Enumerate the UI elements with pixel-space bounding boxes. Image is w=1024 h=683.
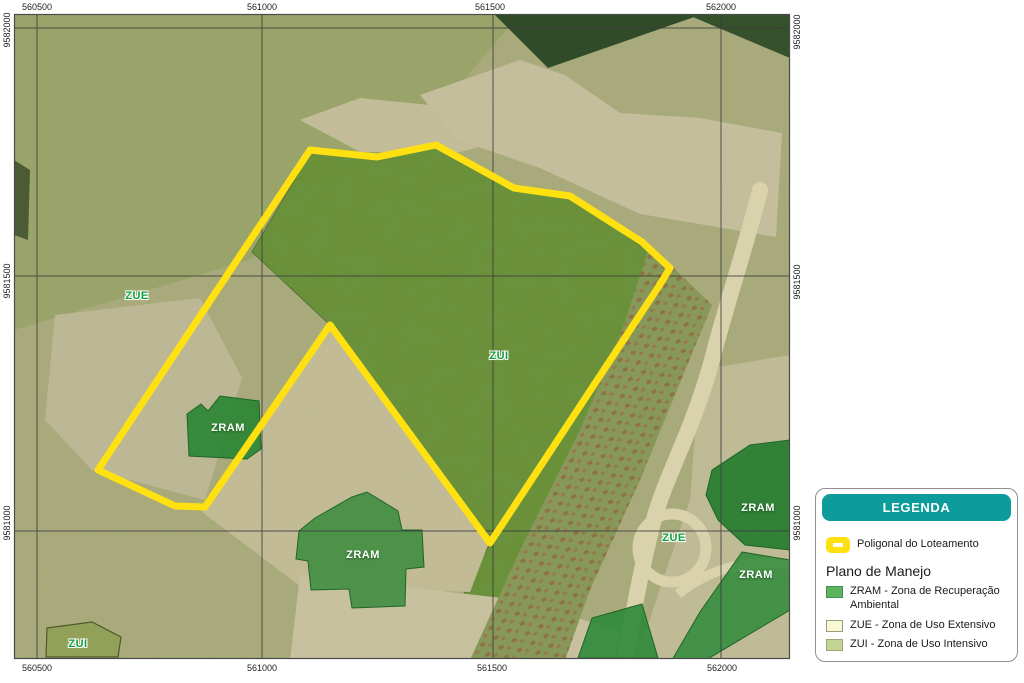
grid-label-left-9582000: 9582000 xyxy=(2,12,12,47)
grid-label-bottom-560500: 560500 xyxy=(22,663,52,673)
legend-item-zui: ZUI - Zona de Uso Intensivo xyxy=(826,638,1011,652)
aerial-grain xyxy=(14,14,790,659)
grid-label-bottom-561000: 561000 xyxy=(247,663,277,673)
legend-zone-items: ZRAM - Zona de Recuperação AmbientalZUE … xyxy=(826,585,1011,652)
legend-item-zram: ZRAM - Zona de Recuperação Ambiental xyxy=(826,585,1011,613)
zram-swatch-icon xyxy=(826,586,843,598)
grid-label-right-9581500: 9581500 xyxy=(792,264,802,299)
zone-label-zui: ZUI xyxy=(489,350,508,362)
polygon-outline-icon xyxy=(826,537,850,553)
legend-item-label: ZRAM - Zona de Recuperação Ambiental xyxy=(850,585,1011,613)
grid-label-bottom-561500: 561500 xyxy=(477,663,507,673)
map-document: 5605005610005615005620005605005610005615… xyxy=(0,0,1024,683)
zone-label-zui: ZUI xyxy=(68,638,87,650)
grid-label-left-9581000: 9581000 xyxy=(2,505,12,540)
legend-item-polygon: Poligonal do Loteamento xyxy=(826,537,1011,553)
grid-label-bottom-562000: 562000 xyxy=(707,663,737,673)
legend-title: LEGENDA xyxy=(822,494,1011,521)
legend-panel: LEGENDA Poligonal do Loteamento Plano de… xyxy=(815,488,1018,662)
grid-label-top-561500: 561500 xyxy=(475,2,505,12)
zui-swatch-icon xyxy=(826,639,843,651)
grid-label-top-560500: 560500 xyxy=(22,2,52,12)
grid-label-right-9582000: 9582000 xyxy=(792,14,802,49)
grid-label-top-562000: 562000 xyxy=(706,2,736,12)
legend-body: Poligonal do Loteamento Plano de Manejo … xyxy=(826,529,1011,655)
zue-swatch-icon xyxy=(826,620,843,632)
grid-label-left-9581500: 9581500 xyxy=(2,263,12,298)
legend-polygon-label: Poligonal do Loteamento xyxy=(857,538,979,551)
zone-label-zram: ZRAM xyxy=(741,502,775,514)
zone-label-zram: ZRAM xyxy=(739,569,773,581)
map-layers xyxy=(14,14,790,660)
zone-label-zram: ZRAM xyxy=(346,549,380,561)
legend-item-zue: ZUE - Zona de Uso Extensivo xyxy=(826,619,1011,633)
zone-label-zue: ZUE xyxy=(125,290,149,302)
grid-label-top-561000: 561000 xyxy=(247,2,277,12)
zone-label-zram: ZRAM xyxy=(211,422,245,434)
legend-section-title: Plano de Manejo xyxy=(826,563,1011,579)
legend-item-label: ZUE - Zona de Uso Extensivo xyxy=(850,619,1011,633)
zone-label-zue: ZUE xyxy=(662,532,686,544)
grid-label-right-9581000: 9581000 xyxy=(792,505,802,540)
legend-item-label: ZUI - Zona de Uso Intensivo xyxy=(850,638,1011,652)
